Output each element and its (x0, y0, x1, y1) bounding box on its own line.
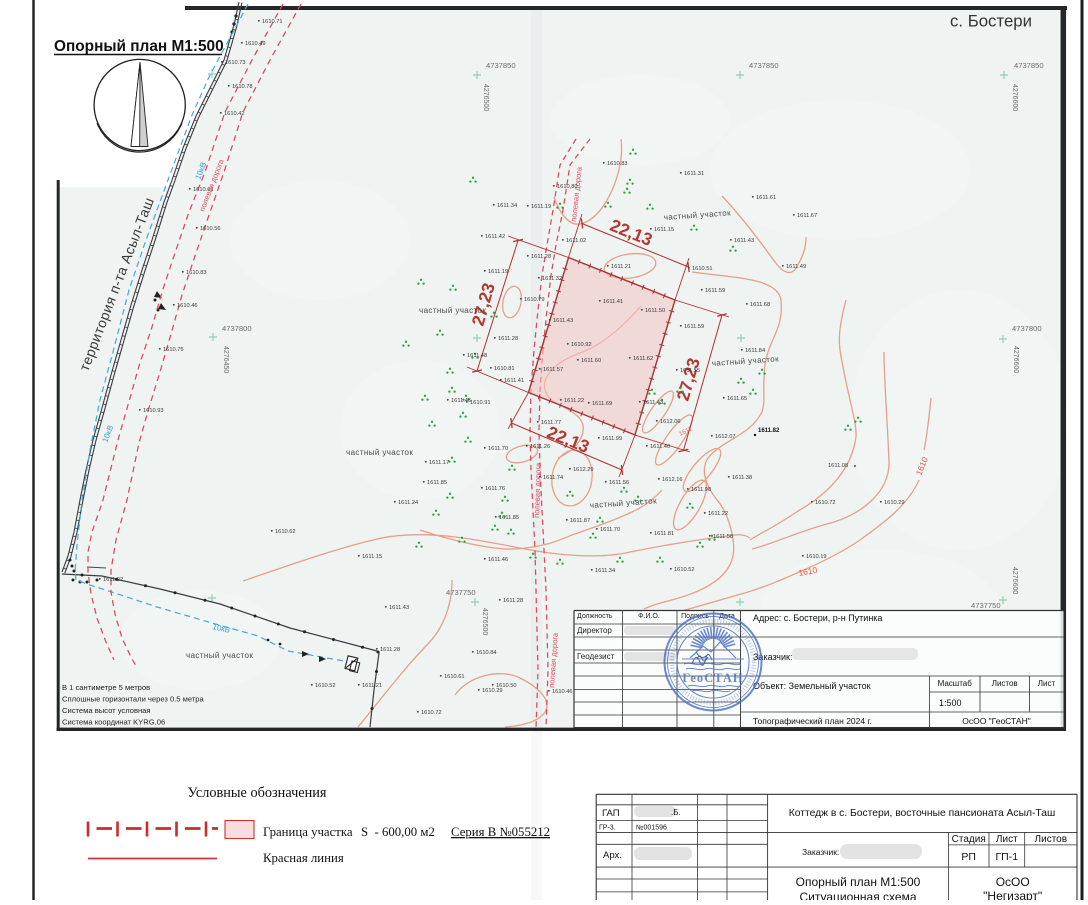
svg-text:1610.62: 1610.62 (275, 529, 296, 535)
svg-text:Ситуационная схема: Ситуационная схема (799, 890, 916, 900)
svg-text:частный участок: частный участок (419, 306, 486, 315)
svg-text:1612.29: 1612.29 (573, 467, 594, 473)
svg-text:1611.34: 1611.34 (595, 568, 615, 574)
svg-text:1611.19: 1611.19 (488, 269, 508, 275)
svg-text:1610.73: 1610.73 (225, 60, 246, 66)
svg-text:1611.31: 1611.31 (684, 171, 704, 177)
svg-text:Система координат KYRG.06: Система координат KYRG.06 (62, 718, 165, 727)
svg-text:Лист: Лист (1038, 679, 1056, 688)
svg-text:1611.85: 1611.85 (427, 480, 447, 486)
svg-text:1611.22: 1611.22 (103, 577, 123, 583)
svg-text:1611.59: 1611.59 (684, 324, 704, 330)
svg-text:ГеоСТАН: ГеоСТАН (682, 671, 743, 685)
svg-text:1611.38: 1611.38 (732, 475, 752, 481)
svg-text:1611.50: 1611.50 (645, 308, 665, 314)
svg-text:Директор: Директор (577, 626, 612, 635)
svg-text:1:500: 1:500 (939, 698, 962, 708)
svg-text:1611.17: 1611.17 (429, 460, 449, 466)
svg-text:4276500: 4276500 (482, 84, 489, 111)
svg-text:ГАП: ГАП (602, 808, 620, 819)
svg-text:Стадия: Стадия (952, 834, 986, 845)
svg-text:1611.61: 1611.61 (756, 195, 776, 201)
svg-text:4737800: 4737800 (222, 324, 252, 333)
svg-text:Листов: Листов (1035, 834, 1068, 845)
svg-text:1610.46: 1610.46 (552, 689, 573, 695)
svg-text:1611.15: 1611.15 (362, 554, 382, 560)
svg-text:РП: РП (961, 851, 976, 863)
svg-text:1611.99: 1611.99 (602, 436, 622, 442)
svg-text:частный участок: частный участок (346, 448, 413, 457)
svg-text:Система высот условная: Система высот условная (62, 706, 151, 715)
svg-text:1611.08: 1611.08 (828, 463, 848, 469)
svg-text:1610.61: 1610.61 (444, 674, 465, 680)
svg-text:1611.43: 1611.43 (389, 605, 409, 611)
svg-text:4737850: 4737850 (1014, 61, 1044, 70)
svg-text:1610.92: 1610.92 (571, 342, 592, 348)
svg-text:1610.52: 1610.52 (674, 567, 695, 573)
svg-text:1611.82: 1611.82 (758, 428, 780, 434)
svg-text:.Б.: .Б. (671, 808, 681, 817)
svg-text:1610.72: 1610.72 (815, 500, 836, 506)
svg-text:1610.52: 1610.52 (315, 683, 336, 689)
svg-text:Листов: Листов (992, 679, 1018, 688)
svg-text:1612.16: 1612.16 (662, 477, 683, 483)
svg-text:1611.26: 1611.26 (530, 444, 550, 450)
svg-text:S - 600,00 м2: S - 600,00 м2 (361, 825, 435, 839)
svg-text:1610.79: 1610.79 (524, 297, 545, 303)
svg-text:1611.41: 1611.41 (504, 378, 524, 384)
svg-text:Ф.И.О.: Ф.И.О. (638, 613, 660, 620)
svg-text:4737800: 4737800 (1012, 324, 1042, 333)
svg-text:4276450: 4276450 (222, 346, 229, 373)
svg-text:1611.19: 1611.19 (531, 204, 551, 210)
svg-text:1611.28: 1611.28 (498, 336, 518, 342)
svg-text:1611.56: 1611.56 (609, 480, 629, 486)
svg-text:1610.61: 1610.61 (193, 187, 214, 193)
svg-text:1611.74: 1611.74 (543, 475, 563, 481)
svg-text:1611.24: 1611.24 (398, 500, 418, 506)
svg-text:Лист: Лист (996, 834, 1018, 845)
svg-text:1611.22: 1611.22 (708, 511, 728, 517)
svg-text:Опорный план М1:500: Опорный план М1:500 (54, 38, 224, 55)
svg-text:ГР-3.: ГР-3. (599, 825, 616, 832)
svg-text:Сплошные горизонтали через 0.5: Сплошные горизонтали через 0.5 метра (62, 695, 205, 704)
svg-text:4737850: 4737850 (749, 61, 779, 70)
svg-text:"Негизарт": "Негизарт" (983, 889, 1042, 900)
svg-text:1611.81: 1611.81 (654, 531, 674, 537)
svg-text:4737850: 4737850 (486, 61, 516, 70)
svg-text:1610.49: 1610.49 (245, 41, 266, 47)
svg-text:1610.51: 1610.51 (692, 266, 713, 272)
svg-text:1611.43: 1611.43 (553, 318, 573, 324)
svg-text:4276600: 4276600 (1011, 567, 1018, 594)
svg-text:1611.43: 1611.43 (734, 238, 754, 244)
svg-text:1611.21: 1611.21 (362, 683, 382, 689)
svg-text:1611.77: 1611.77 (541, 420, 561, 426)
svg-text:1611.40: 1611.40 (650, 444, 670, 450)
svg-text:1611.98: 1611.98 (691, 487, 711, 493)
svg-text:1610.84: 1610.84 (476, 650, 497, 656)
svg-text:1610.75: 1610.75 (163, 347, 184, 353)
svg-text:В 1 сантиметре 5 метров: В 1 сантиметре 5 метров (62, 683, 150, 692)
svg-text:1611.41: 1611.41 (603, 299, 623, 305)
svg-text:Адрес: с. Бостери, р-н Путинка: Адрес: с. Бостери, р-н Путинка (753, 613, 882, 623)
svg-text:1610.83: 1610.83 (186, 270, 207, 276)
svg-text:1611.46: 1611.46 (488, 557, 508, 563)
svg-text:Объект: Земельный участок: Объект: Земельный участок (753, 681, 871, 691)
svg-text:1611.21: 1611.21 (611, 264, 631, 270)
svg-text:1612.07: 1612.07 (715, 434, 736, 440)
svg-text:4276600: 4276600 (1011, 84, 1018, 111)
svg-text:1611.70: 1611.70 (488, 446, 508, 452)
svg-text:4276500: 4276500 (481, 608, 488, 635)
svg-text:1611.55: 1611.55 (680, 368, 700, 374)
svg-text:1611.22: 1611.22 (564, 398, 584, 404)
svg-text:Опорный план М1:500: Опорный план М1:500 (796, 875, 921, 889)
svg-text:1611.49: 1611.49 (786, 264, 806, 270)
svg-text:1610.72: 1610.72 (421, 710, 442, 716)
svg-text:№001596: №001596 (636, 825, 667, 832)
svg-text:1611.76: 1611.76 (485, 486, 505, 492)
svg-text:1611.34: 1611.34 (497, 203, 517, 209)
svg-text:1610.78: 1610.78 (232, 84, 253, 90)
svg-text:1610.91: 1610.91 (470, 400, 491, 406)
svg-text:Коттедж в с. Бостери, восточны: Коттедж в с. Бостери, восточные пансиона… (789, 808, 1055, 819)
svg-text:1611.70: 1611.70 (600, 527, 620, 533)
svg-text:1611.48: 1611.48 (467, 353, 487, 359)
svg-text:1610.56: 1610.56 (200, 226, 221, 232)
svg-text:1610.81: 1610.81 (494, 366, 515, 372)
svg-text:1611.15: 1611.15 (654, 227, 674, 233)
svg-text:Должность: Должность (577, 613, 613, 620)
svg-text:ГП-1: ГП-1 (996, 851, 1019, 863)
svg-text:ОсОО "ГеоСТАН": ОсОО "ГеоСТАН" (962, 716, 1031, 726)
svg-text:1610.42: 1610.42 (224, 111, 245, 117)
svg-text:с. Бостери: с. Бостери (950, 12, 1032, 31)
svg-text:Арх.: Арх. (603, 850, 622, 861)
svg-text:1611.60: 1611.60 (581, 358, 601, 364)
svg-text:1611.59: 1611.59 (705, 288, 725, 294)
svg-text:1610.50: 1610.50 (496, 683, 517, 689)
svg-text:1610.46: 1610.46 (177, 303, 198, 309)
svg-text:4737750: 4737750 (971, 601, 1001, 610)
svg-text:Условные обозначения: Условные обозначения (187, 785, 326, 801)
svg-text:1611.69: 1611.69 (592, 401, 612, 407)
svg-text:ОсОО: ОсОО (996, 875, 1030, 889)
svg-text:1611.62: 1611.62 (633, 356, 653, 362)
svg-text:1611.28: 1611.28 (531, 254, 551, 260)
svg-text:1611.02: 1611.02 (566, 238, 586, 244)
svg-text:Геодезист: Геодезист (577, 652, 615, 661)
svg-text:Заказчик:: Заказчик: (802, 847, 839, 857)
svg-text:Красная линия: Красная линия (263, 851, 344, 865)
svg-text:1611.43: 1611.43 (643, 400, 663, 406)
svg-text:1610.29: 1610.29 (884, 500, 905, 506)
svg-text:1611.85: 1611.85 (499, 515, 519, 521)
svg-text:4737750: 4737750 (446, 588, 476, 597)
svg-text:1611.28: 1611.28 (380, 647, 400, 653)
svg-text:1611.28: 1611.28 (503, 598, 523, 604)
svg-text:Масштаб: Масштаб (938, 679, 973, 688)
svg-text:1611.45: 1611.45 (451, 398, 471, 404)
svg-text:1611.58: 1611.58 (713, 534, 733, 540)
svg-text:1611.57: 1611.57 (543, 367, 563, 373)
svg-text:1611.67: 1611.67 (797, 213, 817, 219)
svg-text:Серия В №055212: Серия В №055212 (451, 825, 550, 839)
svg-text:1611.32: 1611.32 (542, 276, 562, 282)
svg-text:1610.83: 1610.83 (607, 161, 628, 167)
svg-text:1611.65: 1611.65 (727, 396, 747, 402)
svg-text:1611.84: 1611.84 (745, 348, 765, 354)
svg-text:1610,80: 1610,80 (557, 184, 578, 190)
svg-text:4276600: 4276600 (1012, 346, 1019, 373)
svg-text:частный участок: частный участок (186, 651, 253, 660)
svg-text:1612.06: 1612.06 (660, 419, 681, 425)
svg-text:Граница участка: Граница участка (263, 825, 353, 839)
svg-text:1610.19: 1610.19 (806, 554, 827, 560)
svg-text:1611.68: 1611.68 (750, 302, 770, 308)
svg-text:1611.42: 1611.42 (485, 234, 505, 240)
svg-text:1611.87: 1611.87 (570, 518, 590, 524)
svg-text:1610.93: 1610.93 (143, 408, 164, 414)
svg-text:1610.71: 1610.71 (262, 19, 283, 25)
svg-text:Топографический план 2024 г.: Топографический план 2024 г. (753, 716, 872, 726)
